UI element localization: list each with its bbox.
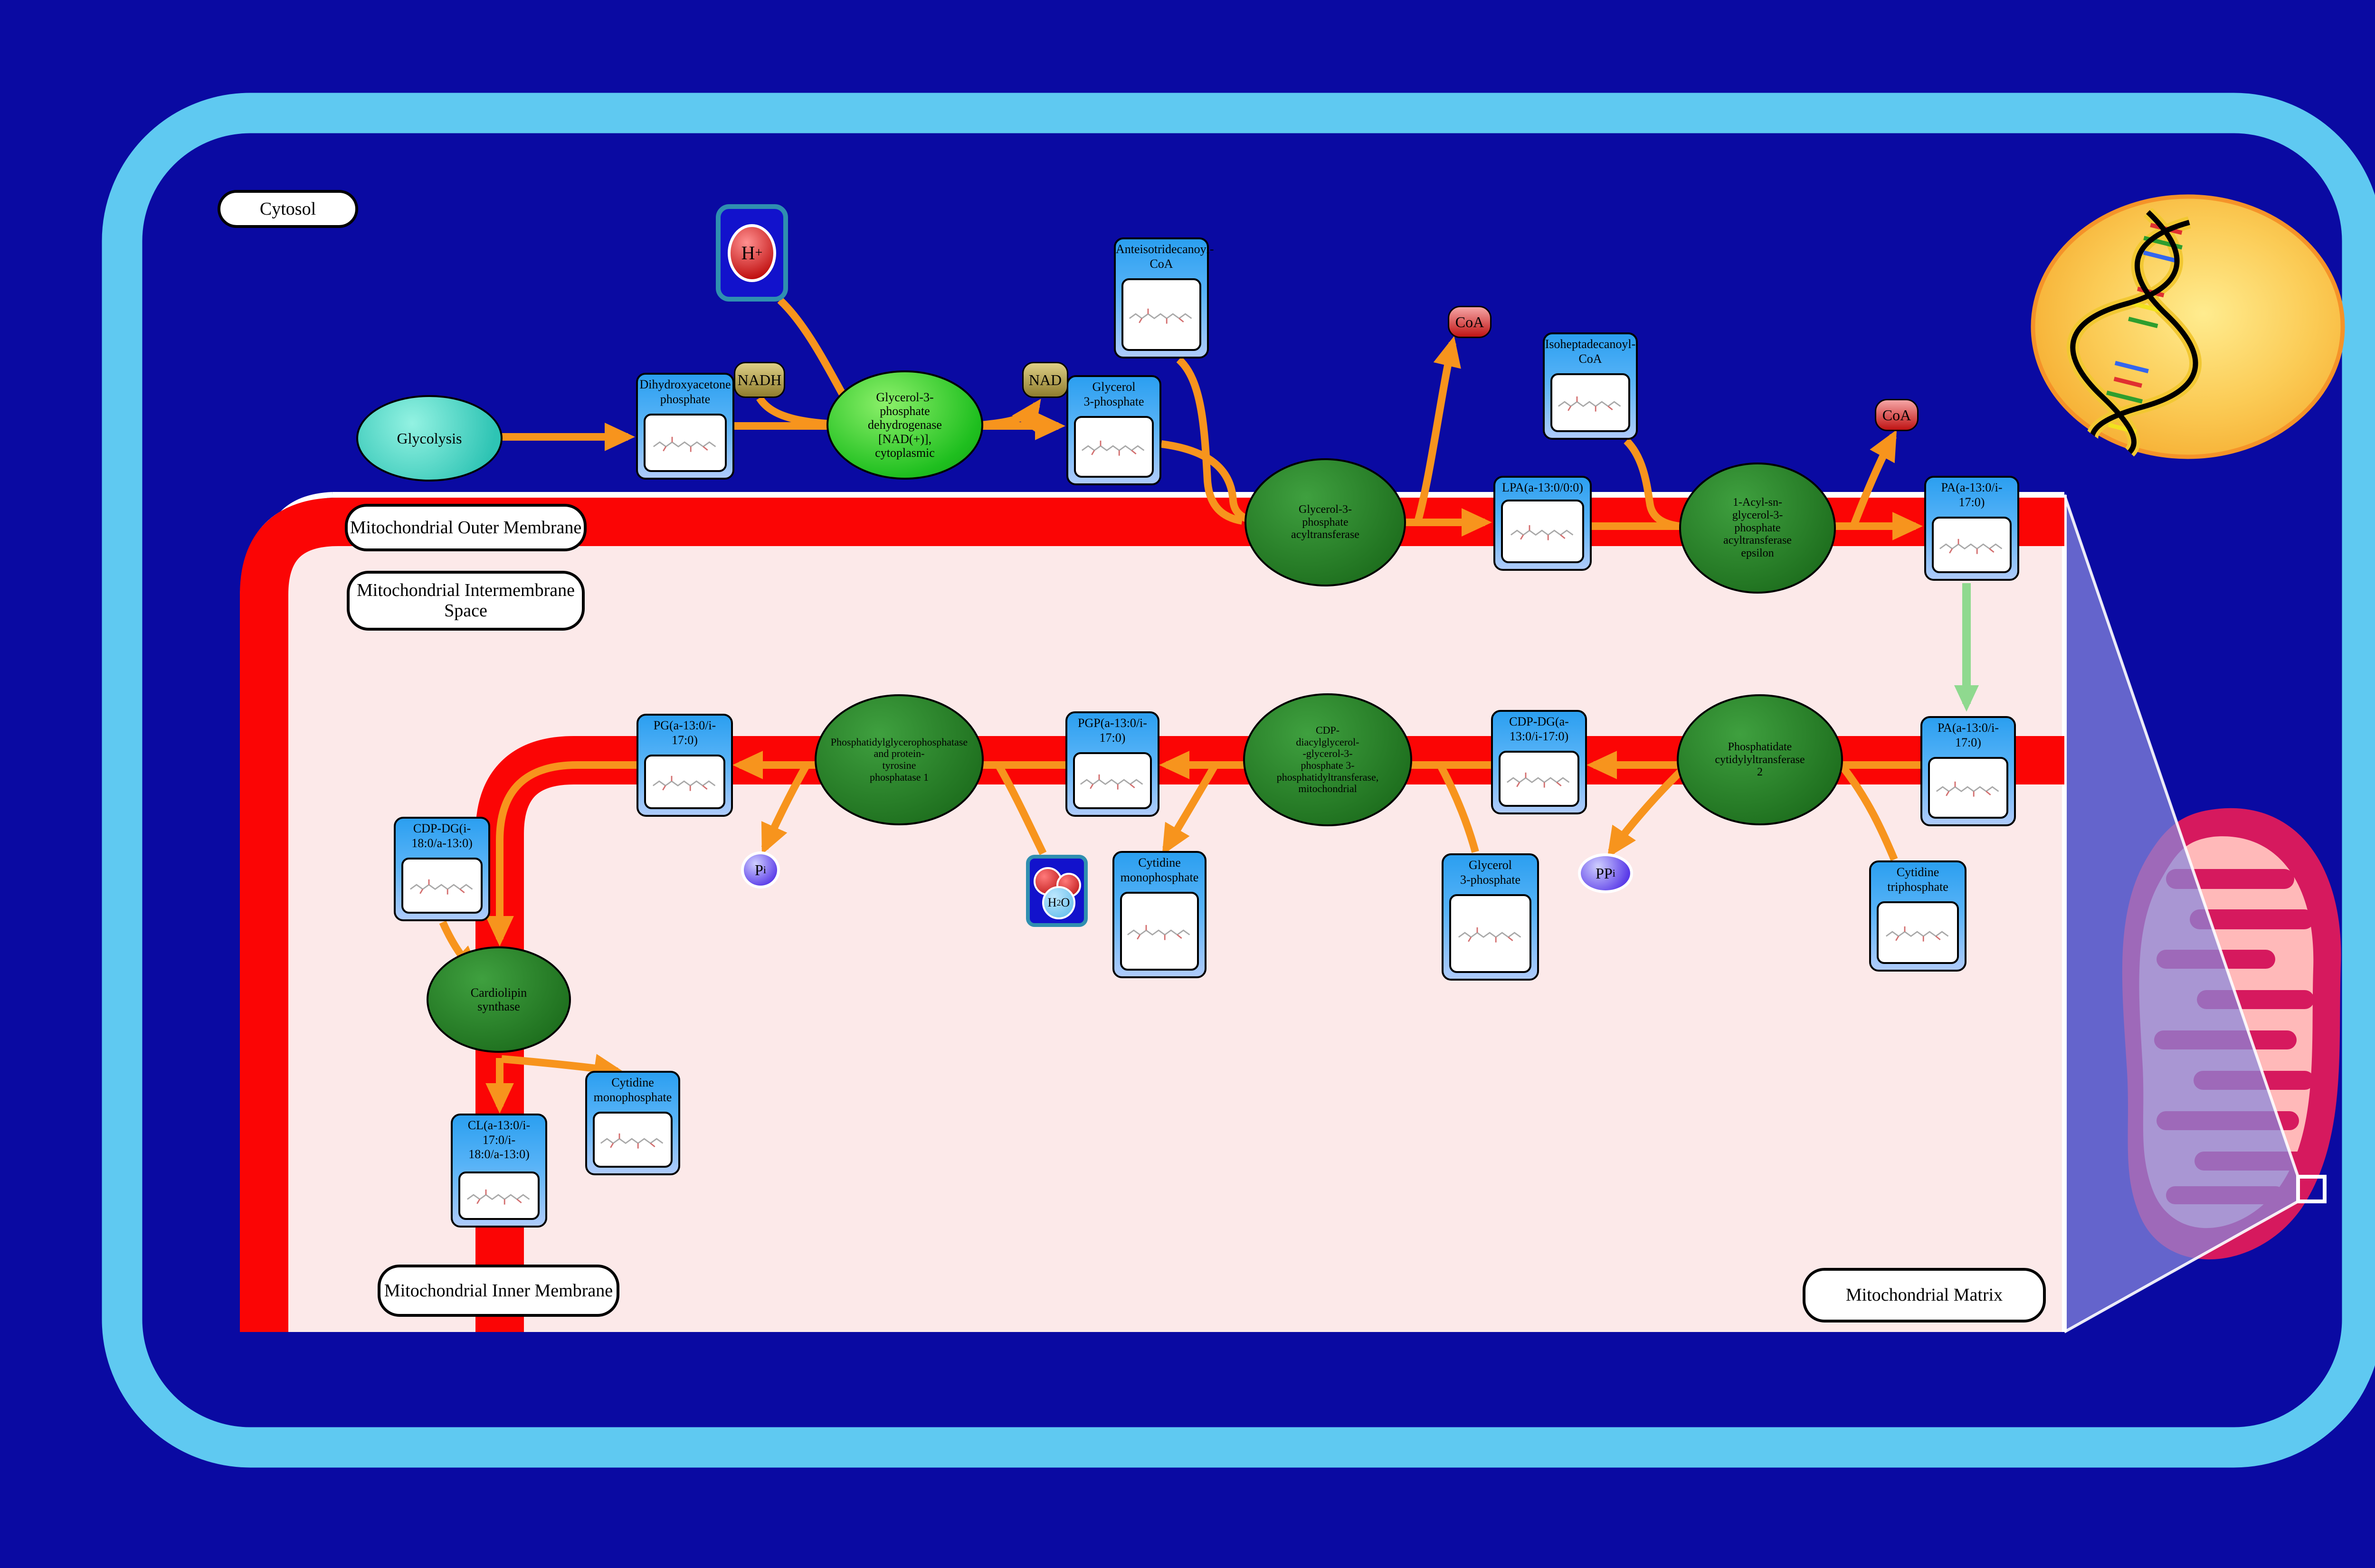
structure-box: [644, 755, 725, 809]
small-molecule-nadh[interactable]: NADH: [734, 362, 785, 398]
structure-box: [644, 414, 727, 472]
metabolite-node-dhap[interactable]: Dihydroxyacetone phosphate: [636, 373, 734, 480]
small-molecule-pi[interactable]: Pi: [741, 851, 780, 888]
metabolite-label: Dihydroxyacetone phosphate: [638, 378, 732, 406]
structure-box: [1928, 757, 2008, 819]
molecule-structure-icon: [1882, 919, 1954, 946]
structure-box: [1449, 894, 1531, 973]
nucleus-illustration: [2033, 197, 2343, 463]
small-molecule-h-plus[interactable]: H+: [716, 204, 788, 302]
molecule-structure-icon: [1503, 765, 1575, 792]
molecule-structure-icon: [464, 1182, 535, 1209]
metabolite-node-ctp[interactable]: Cytidine triphosphate: [1869, 860, 1966, 972]
enzyme-node-gpd[interactable]: Glycerol-3- phosphate dehydrogenase [NAD…: [826, 370, 983, 480]
compartment-label-inner-membrane: Mitochondrial Inner Membrane: [378, 1265, 619, 1317]
molecule-structure-icon: [1077, 767, 1148, 794]
molecule-structure-icon: [650, 430, 721, 456]
molecule-structure-icon: [597, 1126, 668, 1153]
metabolite-label: Cytidine monophosphate: [1114, 856, 1205, 885]
metabolite-node-cdp-dg-1[interactable]: CDP-DG(a- 13:0/i-17:0): [1491, 710, 1587, 814]
metabolite-label: Glycerol 3-phosphate: [1444, 858, 1537, 887]
structure-box: [1073, 752, 1152, 809]
molecule-structure-icon: [1126, 302, 1197, 328]
structure-box: [1121, 278, 1201, 351]
structure-box: [1074, 416, 1154, 478]
small-molecule-coa-1[interactable]: CoA: [1448, 306, 1491, 338]
enzyme-node-agpat[interactable]: 1-Acyl-sn- glycerol-3- phosphate acyltra…: [1679, 463, 1836, 594]
molecule-structure-icon: [1078, 434, 1149, 460]
metabolite-label: PG(a-13:0/i- 17:0): [638, 718, 731, 747]
metabolite-node-lpa[interactable]: LPA(a-13:0/0:0): [1493, 476, 1592, 571]
structure-box: [1499, 751, 1579, 807]
small-molecule-h2o[interactable]: H2O: [1026, 855, 1088, 927]
compartment-label-intermembrane-space: Mitochondrial Intermembrane Space: [347, 571, 585, 631]
structure-box: [1120, 892, 1199, 971]
metabolite-node-isohep-coa[interactable]: Isoheptadecanoyl- CoA: [1543, 332, 1638, 440]
small-molecule-ppi[interactable]: PPi: [1578, 853, 1633, 893]
pathway-canvas: [0, 0, 2375, 1568]
molecule-structure-icon: [1936, 532, 2007, 558]
structure-box: [458, 1171, 540, 1220]
molecule-structure-icon: [1507, 518, 1578, 545]
enzyme-node-cls[interactable]: Cardiolipin synthase: [427, 946, 571, 1053]
molecule-structure-icon: [1455, 920, 1526, 947]
metabolite-node-g3p-matrix[interactable]: Glycerol 3-phosphate: [1442, 853, 1539, 981]
molecule-structure-icon: [1933, 775, 2004, 801]
pathway-diagram: CytosolMitochondrial Outer MembraneMitoc…: [0, 0, 2375, 1568]
metabolite-label: Isoheptadecanoyl- CoA: [1545, 337, 1636, 366]
structure-box: [1932, 517, 2012, 573]
metabolite-node-pgp[interactable]: PGP(a-13:0/i- 17:0): [1065, 711, 1159, 817]
metabolite-label: Glycerol 3-phosphate: [1068, 380, 1159, 409]
molecule-structure-icon: [1124, 918, 1195, 945]
metabolite-node-cmp-bottom[interactable]: Cytidine monophosphate: [585, 1071, 680, 1175]
process-node-glycolysis[interactable]: Glycolysis: [356, 395, 503, 482]
metabolite-label: Cytidine triphosphate: [1871, 865, 1965, 894]
metabolite-node-cl[interactable]: CL(a-13:0/i- 17:0/i- 18:0/a-13:0): [451, 1114, 547, 1228]
compartment-label-outer-membrane: Mitochondrial Outer Membrane: [345, 504, 587, 551]
metabolite-label: CDP-DG(i- 18:0/a-13:0): [396, 822, 488, 850]
small-molecule-coa-2[interactable]: CoA: [1875, 399, 1919, 431]
molecule-structure-icon: [649, 769, 721, 795]
molecule-structure-icon: [407, 872, 478, 899]
metabolite-label: Cytidine monophosphate: [587, 1076, 678, 1105]
structure-box: [1501, 500, 1584, 563]
structure-box: [1877, 901, 1959, 964]
metabolite-label: PA(a-13:0/i- 17:0): [1926, 481, 2017, 510]
structure-box: [593, 1112, 673, 1168]
metabolite-label: PGP(a-13:0/i- 17:0): [1067, 716, 1158, 745]
small-molecule-nad[interactable]: NAD: [1022, 362, 1068, 398]
metabolite-node-cdp-dg-2[interactable]: CDP-DG(i- 18:0/a-13:0): [394, 817, 490, 921]
compartment-label-matrix: Mitochondrial Matrix: [1803, 1268, 2046, 1322]
metabolite-label: Anteisotridecanoyl- CoA: [1116, 242, 1207, 271]
structure-box: [401, 858, 483, 914]
metabolite-label: CDP-DG(a- 13:0/i-17:0): [1493, 715, 1585, 744]
enzyme-node-gpat[interactable]: Glycerol-3- phosphate acyltransferase: [1244, 458, 1406, 586]
metabolite-label: PA(a-13:0/i- 17:0): [1922, 721, 2014, 750]
metabolite-node-cmp-mid[interactable]: Cytidine monophosphate: [1112, 851, 1206, 978]
metabolite-node-pg[interactable]: PG(a-13:0/i- 17:0): [636, 714, 733, 817]
metabolite-label: CL(a-13:0/i- 17:0/i- 18:0/a-13:0): [453, 1118, 545, 1162]
metabolite-label: LPA(a-13:0/0:0): [1495, 481, 1590, 495]
enzyme-node-cdgppt[interactable]: CDP- diacylglycerol- -glycerol-3- phosph…: [1243, 693, 1412, 826]
molecule-structure-icon: [1555, 389, 1626, 416]
metabolite-node-g3p-top[interactable]: Glycerol 3-phosphate: [1066, 375, 1161, 485]
proton-icon: H+: [728, 224, 776, 282]
metabolite-node-pa-2[interactable]: PA(a-13:0/i- 17:0): [1920, 716, 2016, 826]
metabolite-node-anteiso-coa[interactable]: Anteisotridecanoyl- CoA: [1114, 237, 1209, 359]
compartment-label-cytosol: Cytosol: [218, 190, 358, 228]
water-molecule-icon: H2O: [1030, 859, 1084, 923]
enzyme-node-pct2[interactable]: Phosphatidate cytidylyltransferase 2: [1677, 694, 1843, 825]
enzyme-node-pgpp[interactable]: Phosphatidylglycerophosphatase and prote…: [815, 694, 984, 825]
structure-box: [1550, 373, 1630, 432]
metabolite-node-pa-1[interactable]: PA(a-13:0/i- 17:0): [1924, 476, 2019, 581]
